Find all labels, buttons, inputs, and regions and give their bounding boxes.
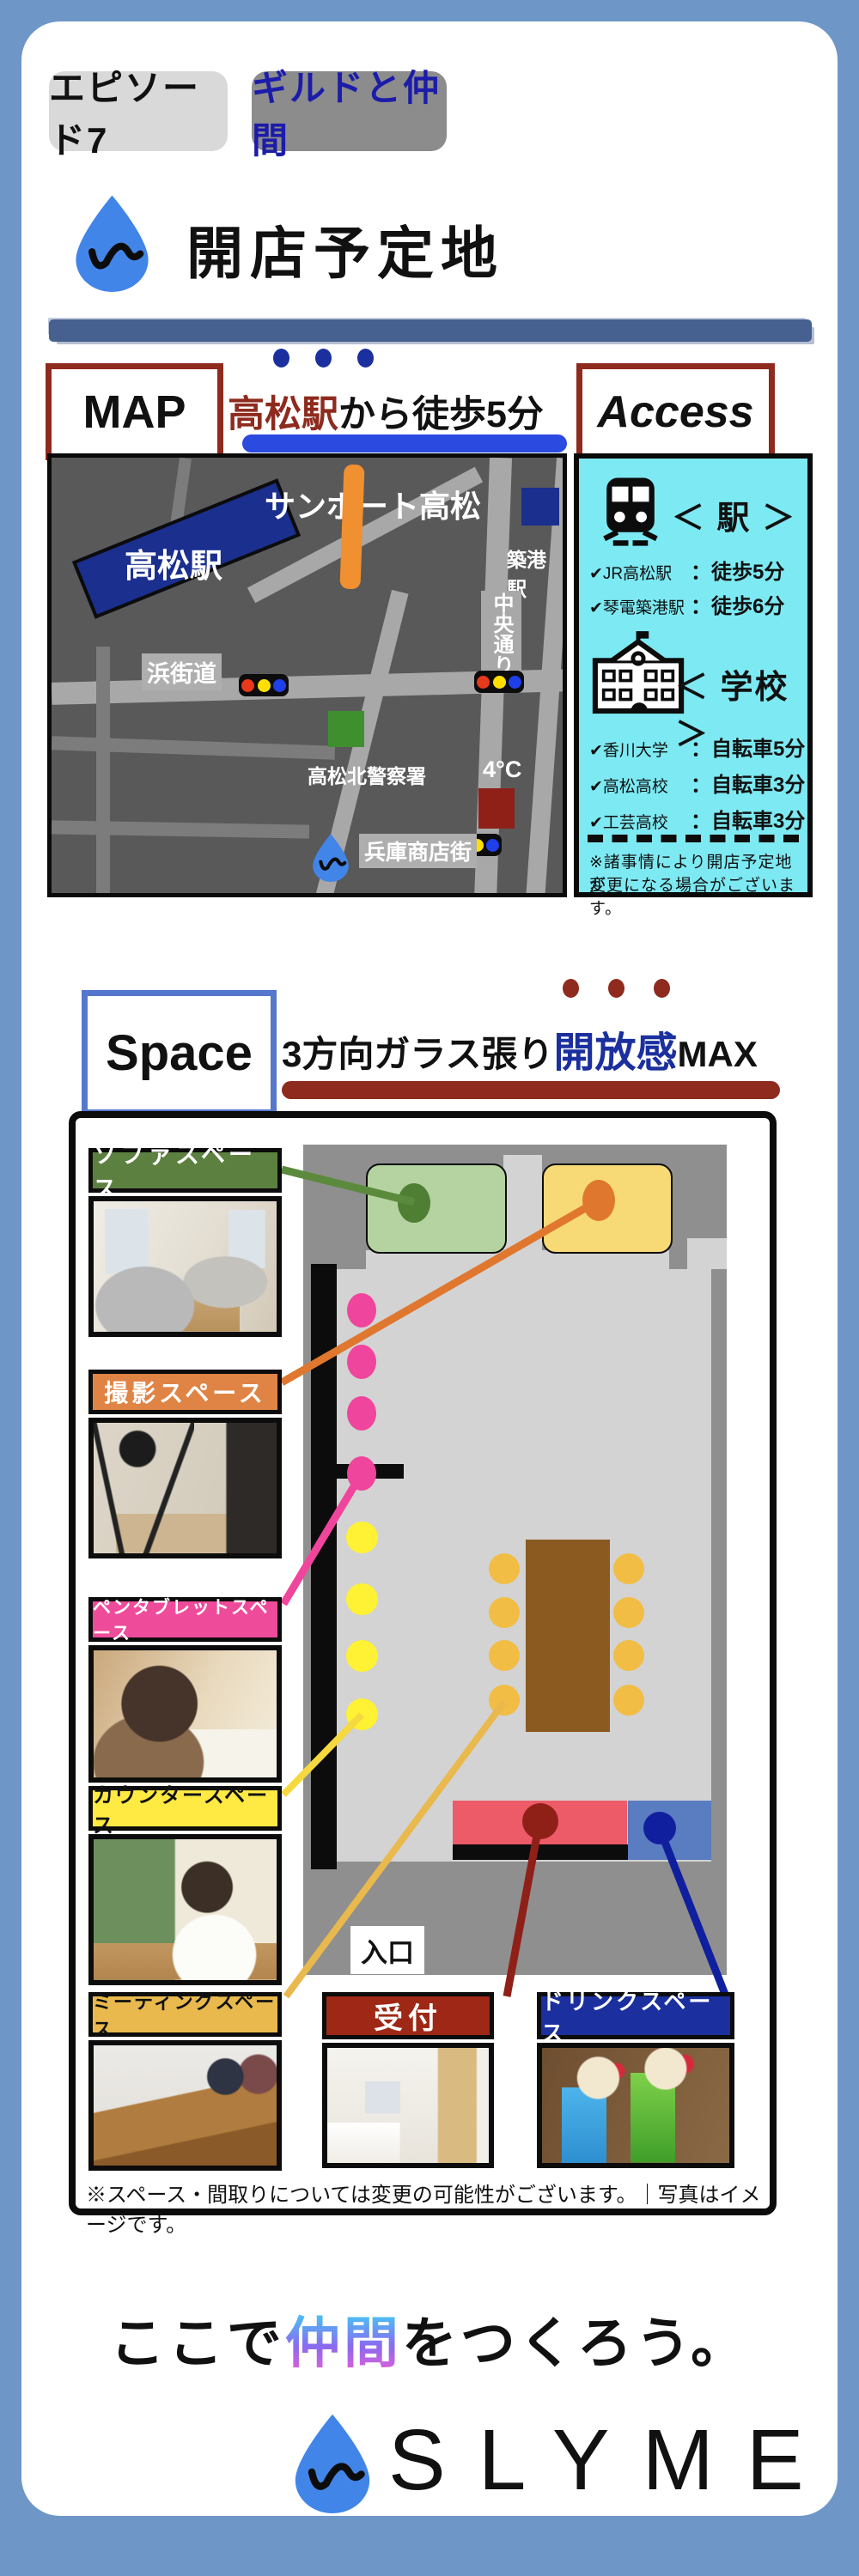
plan-floor: [337, 1269, 711, 1862]
meeting-space-label-text: ミーティングスペース: [93, 1987, 277, 2042]
access-divider: [588, 835, 799, 842]
pentablet-seat-dot: [347, 1293, 376, 1327]
pentablet-space-photo: [88, 1645, 282, 1783]
area-map: サンポート高松 高松駅 築港駅 中央通り 浜街道 高松北警察署 4°C 兵庫商店…: [47, 453, 567, 897]
sofa-space-label-text: ソファスペース: [93, 1136, 277, 1205]
road-left-vertical: [96, 647, 110, 897]
four-c-shape: [478, 788, 515, 829]
pentablet-space-label: ペンタブレットスペース: [88, 1597, 282, 1642]
space-headline-highlight: 開放感: [554, 1030, 678, 1076]
access-note-line2: 変更になる場合がございます。: [589, 872, 807, 919]
shooting-space-label-text: 撮影スペース: [104, 1375, 266, 1409]
title-brush-underline: [49, 319, 812, 342]
meeting-space-label: ミーティングスペース: [88, 1992, 282, 2037]
episode-badge: エピソード7: [49, 71, 228, 151]
counter-seat-dot: [346, 1522, 378, 1553]
access-item-value: ：徒歩6分: [691, 589, 784, 619]
station-heading: ＜ 駅 ＞: [672, 491, 796, 538]
sofa-area-dot: [398, 1183, 430, 1223]
school-icon: [591, 630, 685, 716]
access-item-value: ：自転車5分: [691, 732, 805, 762]
orange-route-stroke: [339, 465, 364, 590]
counter-space-label-text: カウンタースペース: [93, 1778, 277, 1838]
access-section-label: Access: [576, 363, 775, 460]
meeting-seat-dot: [613, 1640, 644, 1671]
traffic-light-icon: [474, 671, 524, 693]
plan-sofa-area: [366, 1163, 507, 1254]
pentablet-seat-dot: [347, 1456, 376, 1491]
hyogo-label: 兵庫商店街: [359, 834, 477, 868]
footer-tagline: ここで仲間をつくろう。: [0, 2300, 859, 2379]
counter-seat-dot: [346, 1640, 378, 1672]
access-item-value: ：自転車3分: [691, 768, 805, 798]
access-station-item: ✔琴電築港駅 ：徒歩6分: [589, 589, 806, 619]
meeting-seat-dot: [613, 1597, 644, 1628]
plan-black-wall: [311, 1264, 337, 1869]
shooting-area-dot: [582, 1180, 615, 1221]
reception-photo: [322, 2043, 494, 2168]
tagline-post: をつくろう。: [402, 2312, 749, 2374]
chuodori-label: 中央通り: [481, 591, 521, 677]
four-c-label: 4°C: [483, 756, 521, 783]
police-label: 高松北警察署: [308, 760, 426, 789]
hamakaido-label: 浜街道: [142, 653, 222, 690]
space-headline-underline: [282, 1081, 780, 1099]
tagline-highlight: 仲間: [285, 2312, 402, 2374]
meeting-seat-dot: [489, 1597, 520, 1628]
pentablet-space-label-text: ペンタブレットスペース: [93, 1594, 277, 1645]
shooting-space-photo: [88, 1418, 282, 1558]
space-label-text: Space: [106, 1024, 253, 1082]
access-school-item: ✔工芸高校 ：自転車3分: [589, 804, 806, 834]
traffic-light-icon: [239, 674, 289, 696]
access-item-value: ：徒歩5分: [691, 555, 784, 585]
access-item-name: ✔JR高松駅: [589, 561, 691, 584]
topic-badge: ギルドと仲間: [252, 71, 447, 151]
entrance-box: 入口: [350, 1926, 424, 1974]
meeting-table: [526, 1540, 610, 1732]
meeting-seat-dot: [489, 1640, 520, 1671]
train-icon: [598, 476, 663, 550]
counter-space-label: カウンタースペース: [88, 1786, 282, 1831]
sofa-space-photo: [88, 1196, 282, 1337]
counter-seat-dot: [346, 1698, 378, 1730]
access-school-item: ✔高松高校 ：自転車3分: [589, 768, 806, 798]
meeting-seat-dot: [613, 1553, 644, 1584]
access-item-name: ✔琴電築港駅: [589, 595, 691, 618]
episode-badge-label: エピソード7: [49, 59, 228, 164]
access-item-name: ✔工芸高校: [589, 810, 691, 833]
topic-badge-label: ギルドと仲間: [252, 59, 447, 164]
space-section-label: Space: [82, 990, 277, 1115]
plan-left-wall: [303, 1269, 311, 1870]
slyme-drop-logo-icon: [62, 191, 162, 292]
meeting-seat-dot: [613, 1685, 644, 1716]
reception-label-text: 受付: [374, 1995, 442, 2037]
space-headline-dots: [563, 979, 670, 998]
space-note: ※スペース・間取りについては変更の可能性がございます。｜写真はイメージです。: [86, 2178, 765, 2238]
walk-subtitle: 高松駅から徒歩5分: [228, 385, 544, 438]
brand-wordmark: SLYME: [388, 2411, 837, 2510]
sunport-label: サンポート高松: [265, 482, 481, 526]
meeting-seat-dot: [489, 1553, 520, 1584]
space-headline: 3方向ガラス張り開放感MAX: [282, 1018, 758, 1078]
road-left-horizontal-1: [52, 736, 335, 760]
police-station-shape: [328, 711, 364, 747]
walk-subtitle-underline: [242, 434, 567, 453]
plan-right-wall: [711, 1269, 727, 1975]
coworking-label: コワーキングスペース: [314, 890, 525, 897]
plan-floor-notch: [687, 1238, 727, 1269]
slyme-drop-logo-icon: [306, 827, 356, 887]
space-headline-post: MAX: [678, 1034, 758, 1074]
access-item-name: ✔高松高校: [589, 774, 691, 797]
space-headline-pre: 3方向ガラス張り: [282, 1034, 554, 1074]
access-label-text: Access: [597, 386, 753, 438]
counter-space-photo: [88, 1834, 282, 1985]
drink-space-label-text: ドリンクスペース: [541, 1984, 730, 2048]
pentablet-seat-dot: [347, 1345, 376, 1379]
chikko-station-shape: [521, 488, 559, 526]
reception-label: 受付: [322, 1992, 494, 2039]
shooting-space-label: 撮影スペース: [88, 1370, 282, 1414]
drink-space-label: ドリンクスペース: [537, 1992, 734, 2039]
access-panel: ＜ 駅 ＞ ✔JR高松駅 ：徒歩5分 ✔琴電築港駅 ：徒歩6分 ＜ 学校 ＞ ✔…: [574, 453, 813, 897]
access-item-value: ：自転車3分: [691, 804, 805, 834]
access-station-item: ✔JR高松駅 ：徒歩5分: [589, 555, 806, 585]
drink-dot: [643, 1812, 676, 1844]
walk-subtitle-rest: から徒歩5分: [338, 394, 544, 435]
access-item-name: ✔香川大学: [589, 738, 691, 761]
walk-subtitle-highlight: 高松駅: [228, 394, 338, 435]
takamatsu-station-label: 高松駅: [125, 539, 222, 586]
road-left-horizontal-2: [52, 820, 309, 838]
map-section-label: MAP: [46, 363, 223, 460]
walk-subtitle-dots: [273, 349, 374, 368]
meeting-space-photo: [88, 2040, 282, 2171]
counter-seat-dot: [346, 1583, 378, 1615]
map-label-text: MAP: [83, 386, 186, 439]
drink-space-photo: [537, 2043, 734, 2168]
plan-reception-counter-edge: [453, 1844, 628, 1860]
page-title: 開店予定地: [186, 208, 504, 290]
tagline-pre: ここで: [110, 2312, 285, 2374]
pentablet-seat-dot: [347, 1396, 376, 1431]
slyme-drop-logo-icon: [281, 2403, 384, 2521]
entrance-label: 入口: [361, 1931, 414, 1970]
meeting-seat-dot: [489, 1685, 520, 1716]
sofa-space-label: ソファスペース: [88, 1148, 282, 1193]
access-school-item: ✔香川大学 ：自転車5分: [589, 732, 806, 762]
reception-dot: [522, 1803, 558, 1839]
